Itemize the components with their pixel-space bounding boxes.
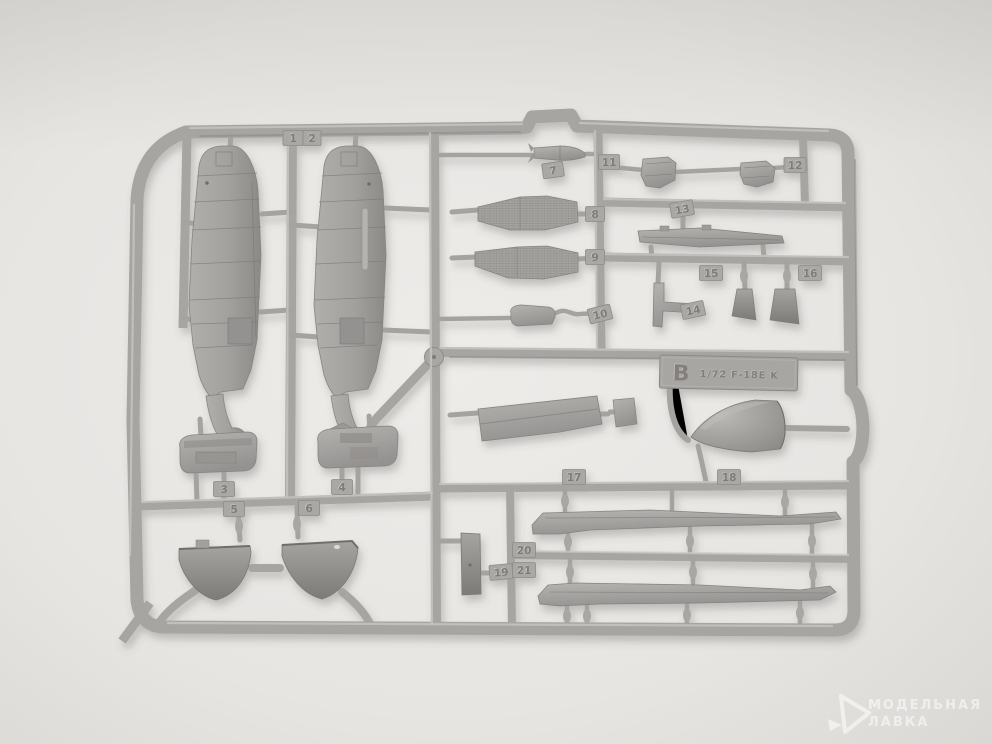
part-number-tag-19: 1919 [489, 564, 513, 581]
bowl-hole [334, 545, 340, 549]
svg-text:3: 3 [220, 484, 227, 496]
runner-junction-pin [432, 355, 436, 359]
part-number-tag-5: 55 [224, 502, 245, 517]
fuselage-left-bay [228, 318, 252, 344]
fuselage-left-hole [205, 181, 209, 185]
part-number-tag-15: 1515 [700, 266, 723, 281]
part-number-tag-16: 1616 [799, 266, 822, 281]
svg-text:8: 8 [591, 209, 598, 221]
svg-text:1/72 F-18E K: 1/72 F-18E K [699, 369, 778, 382]
part-number-tag-6: 66 [299, 501, 320, 516]
part-cockpit-tub [318, 423, 398, 468]
runner-v2 [434, 129, 436, 628]
fuselage-right-slot [362, 208, 368, 270]
part-number-tag-4: 44 [332, 480, 353, 495]
part-small-box [511, 305, 556, 326]
sprue-photo-canvas: 11 22 33 44 55 66 77 88 99 1010 1111 121… [0, 0, 992, 744]
watermark-line1: МОДЕЛЬНАЯ [868, 698, 982, 713]
fuselage-right-hole [367, 182, 371, 186]
svg-text:21: 21 [517, 565, 532, 577]
part-number-tag-18: 1818 [718, 470, 741, 485]
runner-h5 [436, 485, 852, 488]
svg-text:15: 15 [704, 268, 719, 280]
svg-text:B: B [672, 361, 689, 386]
part-number-tag-9: 99 [586, 250, 605, 265]
svg-text:2: 2 [308, 133, 315, 145]
svg-text:1: 1 [289, 133, 296, 145]
part-slab [461, 533, 481, 595]
svg-text:13: 13 [674, 203, 690, 217]
part-number-tag-3: 33 [214, 482, 235, 497]
runner-inner-left [183, 134, 187, 328]
svg-text:20: 20 [517, 545, 532, 557]
part-small-wedge [613, 398, 637, 427]
svg-text:19: 19 [493, 566, 509, 579]
part-number-tag-8: 88 [586, 207, 605, 222]
runner-h8 [511, 555, 852, 559]
part-number-tag-17: 1717 [563, 470, 586, 485]
svg-text:5: 5 [230, 504, 237, 516]
part-number-tag-21: 2121 [513, 563, 536, 578]
part-number-tag-1: 11 [283, 131, 303, 146]
svg-text:18: 18 [722, 472, 737, 484]
svg-text:17: 17 [567, 472, 582, 484]
part-number-tag-20: 2020 [513, 543, 536, 558]
photo-model-kit-sprue: 11 22 33 44 55 66 77 88 99 1010 1111 121… [0, 0, 992, 744]
svg-text:16: 16 [803, 268, 818, 280]
part-block-right [740, 161, 775, 187]
runner-v1 [290, 132, 292, 500]
watermark-line2: ЛАВКА [868, 715, 929, 730]
svg-text:12: 12 [788, 160, 803, 172]
svg-text:6: 6 [305, 503, 312, 515]
part-number-tag-11: 1111 [599, 155, 620, 170]
part-number-tag-7: 77 [542, 161, 565, 179]
svg-text:4: 4 [338, 482, 345, 494]
part-fin-right [770, 289, 799, 324]
fuselage-right-bay [340, 318, 364, 344]
runner-h4 [436, 352, 851, 356]
part-console-left [180, 432, 257, 473]
svg-text:9: 9 [591, 252, 598, 264]
part-number-tag-12: 1212 [784, 158, 806, 173]
sprue-label-tag: B B 1/72 F-18E K 1/72 F-18E K [659, 355, 798, 391]
svg-text:11: 11 [602, 157, 617, 169]
part-number-tag-2: 22 [303, 131, 321, 146]
